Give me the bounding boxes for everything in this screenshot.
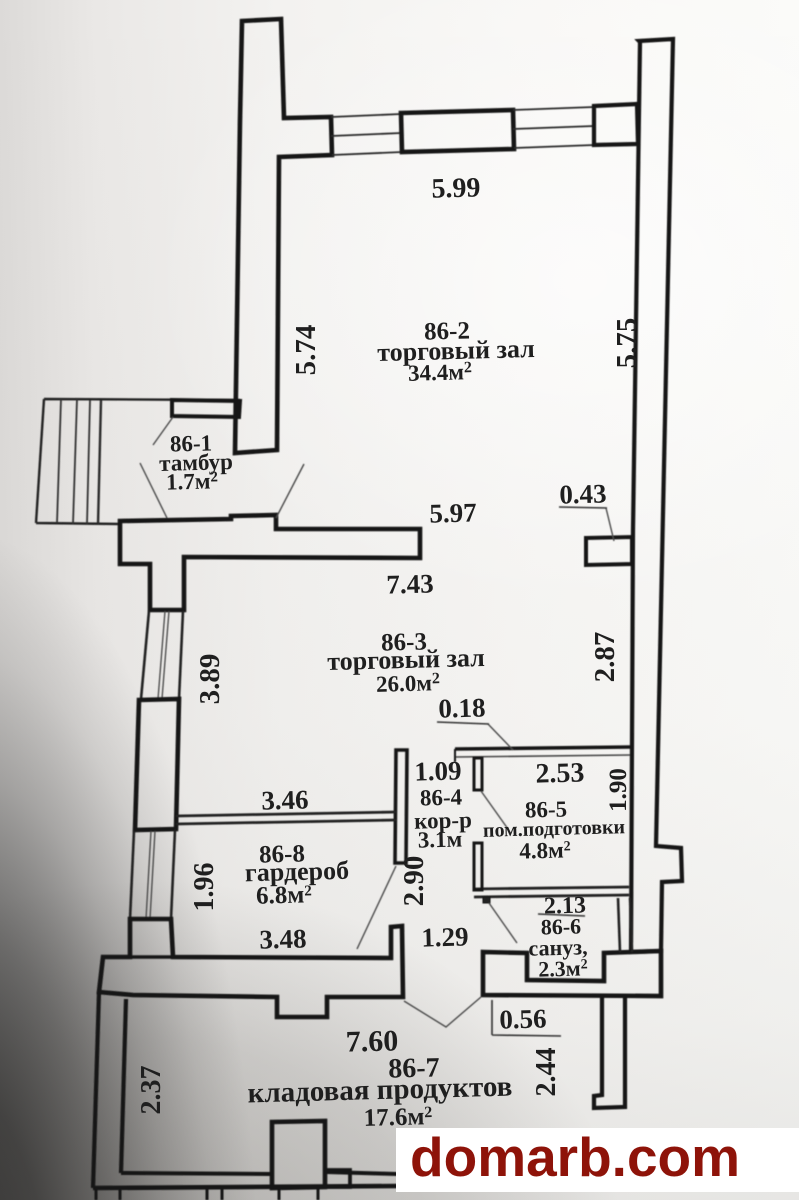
svg-text:1.7м2: 1.7м2 <box>166 468 219 494</box>
svg-text:2.53: 2.53 <box>535 757 585 789</box>
svg-text:4.8м2: 4.8м2 <box>519 837 571 863</box>
svg-text:5.74: 5.74 <box>290 325 322 376</box>
svg-text:34.4м2: 34.4м2 <box>408 359 473 386</box>
svg-text:0.56: 0.56 <box>499 1003 547 1034</box>
svg-text:5.99: 5.99 <box>431 172 481 204</box>
svg-text:86-4: 86-4 <box>420 784 463 810</box>
svg-text:2.87: 2.87 <box>589 632 621 683</box>
svg-text:3.1м: 3.1м <box>417 826 462 852</box>
svg-text:6.8м2: 6.8м2 <box>256 881 312 909</box>
svg-text:3.46: 3.46 <box>261 784 309 815</box>
svg-text:3.89: 3.89 <box>194 654 226 705</box>
svg-text:3.48: 3.48 <box>259 923 307 954</box>
svg-text:1.90: 1.90 <box>605 768 632 812</box>
svg-text:1.09: 1.09 <box>414 755 462 786</box>
svg-text:26.0м2: 26.0м2 <box>376 670 441 697</box>
svg-text:5.75: 5.75 <box>611 318 643 369</box>
svg-text:2.44: 2.44 <box>531 1048 562 1097</box>
svg-text:domarb.com: domarb.com <box>410 1126 740 1188</box>
svg-text:5.97: 5.97 <box>429 497 477 528</box>
svg-text:2.3м2: 2.3м2 <box>538 955 588 981</box>
svg-text:2.90: 2.90 <box>398 856 430 907</box>
svg-text:2.37: 2.37 <box>136 1066 167 1115</box>
svg-text:7.43: 7.43 <box>386 568 434 599</box>
svg-text:0.18: 0.18 <box>438 692 486 723</box>
svg-text:0.43: 0.43 <box>559 478 607 509</box>
svg-text:1.29: 1.29 <box>421 921 469 952</box>
svg-text:1.96: 1.96 <box>189 863 220 912</box>
